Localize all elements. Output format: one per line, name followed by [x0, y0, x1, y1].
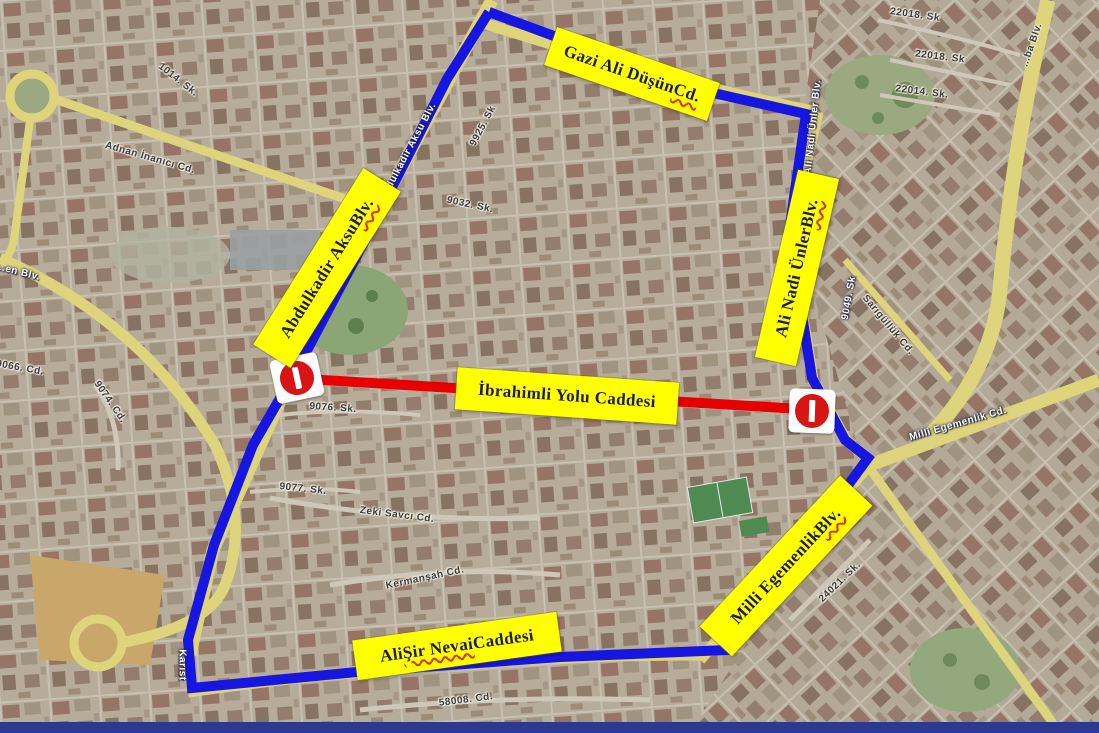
plate-text-misspelled: Cd.	[671, 79, 703, 107]
no-entry-icon	[794, 393, 829, 428]
no-entry-sign-right	[788, 388, 836, 434]
plate-text-misspelled: Şir Nevai	[402, 634, 475, 664]
plate-text-misspelled: Blv.	[797, 197, 823, 230]
plate-text: Caddesi	[472, 625, 536, 653]
plate-text: İbrahimli Yolu Caddesi	[477, 380, 656, 412]
bottom-blue-bar	[0, 722, 1099, 733]
no-entry-icon	[277, 358, 317, 398]
satellite-map: Adnan İnanıcı Cd. 1014. Sk. Abdulkadir A…	[0, 0, 1099, 733]
plate-text: Ali	[379, 644, 404, 667]
